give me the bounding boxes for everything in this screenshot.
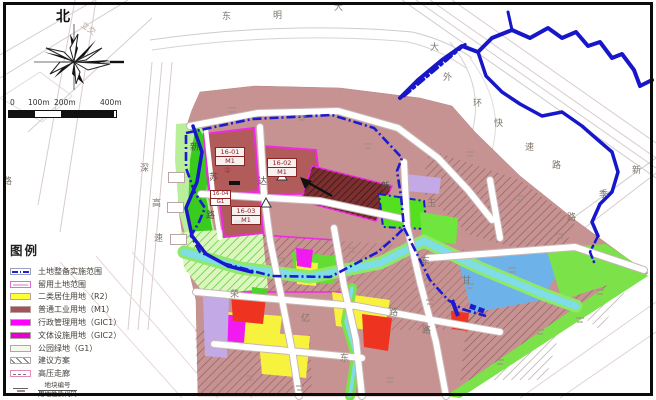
planning-map-screenshot: { "map": { "compass_north": "北", "scale_…	[0, 0, 656, 400]
map-frame-border	[3, 2, 653, 396]
